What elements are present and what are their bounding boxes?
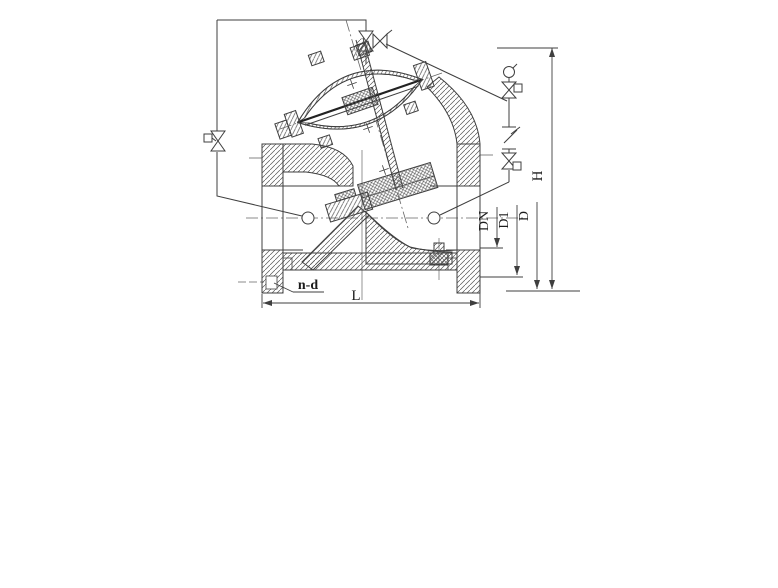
pilot-line-right (440, 64, 522, 215)
body-outlet-neck (427, 77, 480, 144)
dim-label-d1: D1 (497, 211, 512, 228)
needle-valve-icon (502, 153, 521, 170)
right-flange (448, 144, 480, 293)
strainer-icon (502, 127, 520, 149)
dim-label-h: H (530, 170, 546, 181)
needle-valve-icon (204, 131, 225, 151)
pressure-tap-left (302, 212, 314, 224)
pressure-tap-right (428, 212, 440, 224)
body-shoulder-wall (283, 144, 353, 186)
pressure-gauge-icon (504, 64, 518, 78)
foot-bolt-hole (266, 276, 277, 289)
dim-label-d: D (517, 211, 532, 221)
valve-technical-drawing: DN D1 D H L n-d (0, 0, 778, 588)
dim-label-l: L (351, 288, 360, 304)
drain-plug (430, 243, 448, 265)
dimension-d (534, 202, 540, 289)
actuator-assembly (257, 20, 441, 222)
dim-label-dn: DN (477, 211, 492, 231)
needle-valve-icon (502, 82, 522, 98)
bolt-holes-callout: n-d (298, 278, 318, 293)
drawing-canvas: DN D1 D H L n-d (0, 0, 778, 588)
dimension-l (262, 293, 480, 308)
